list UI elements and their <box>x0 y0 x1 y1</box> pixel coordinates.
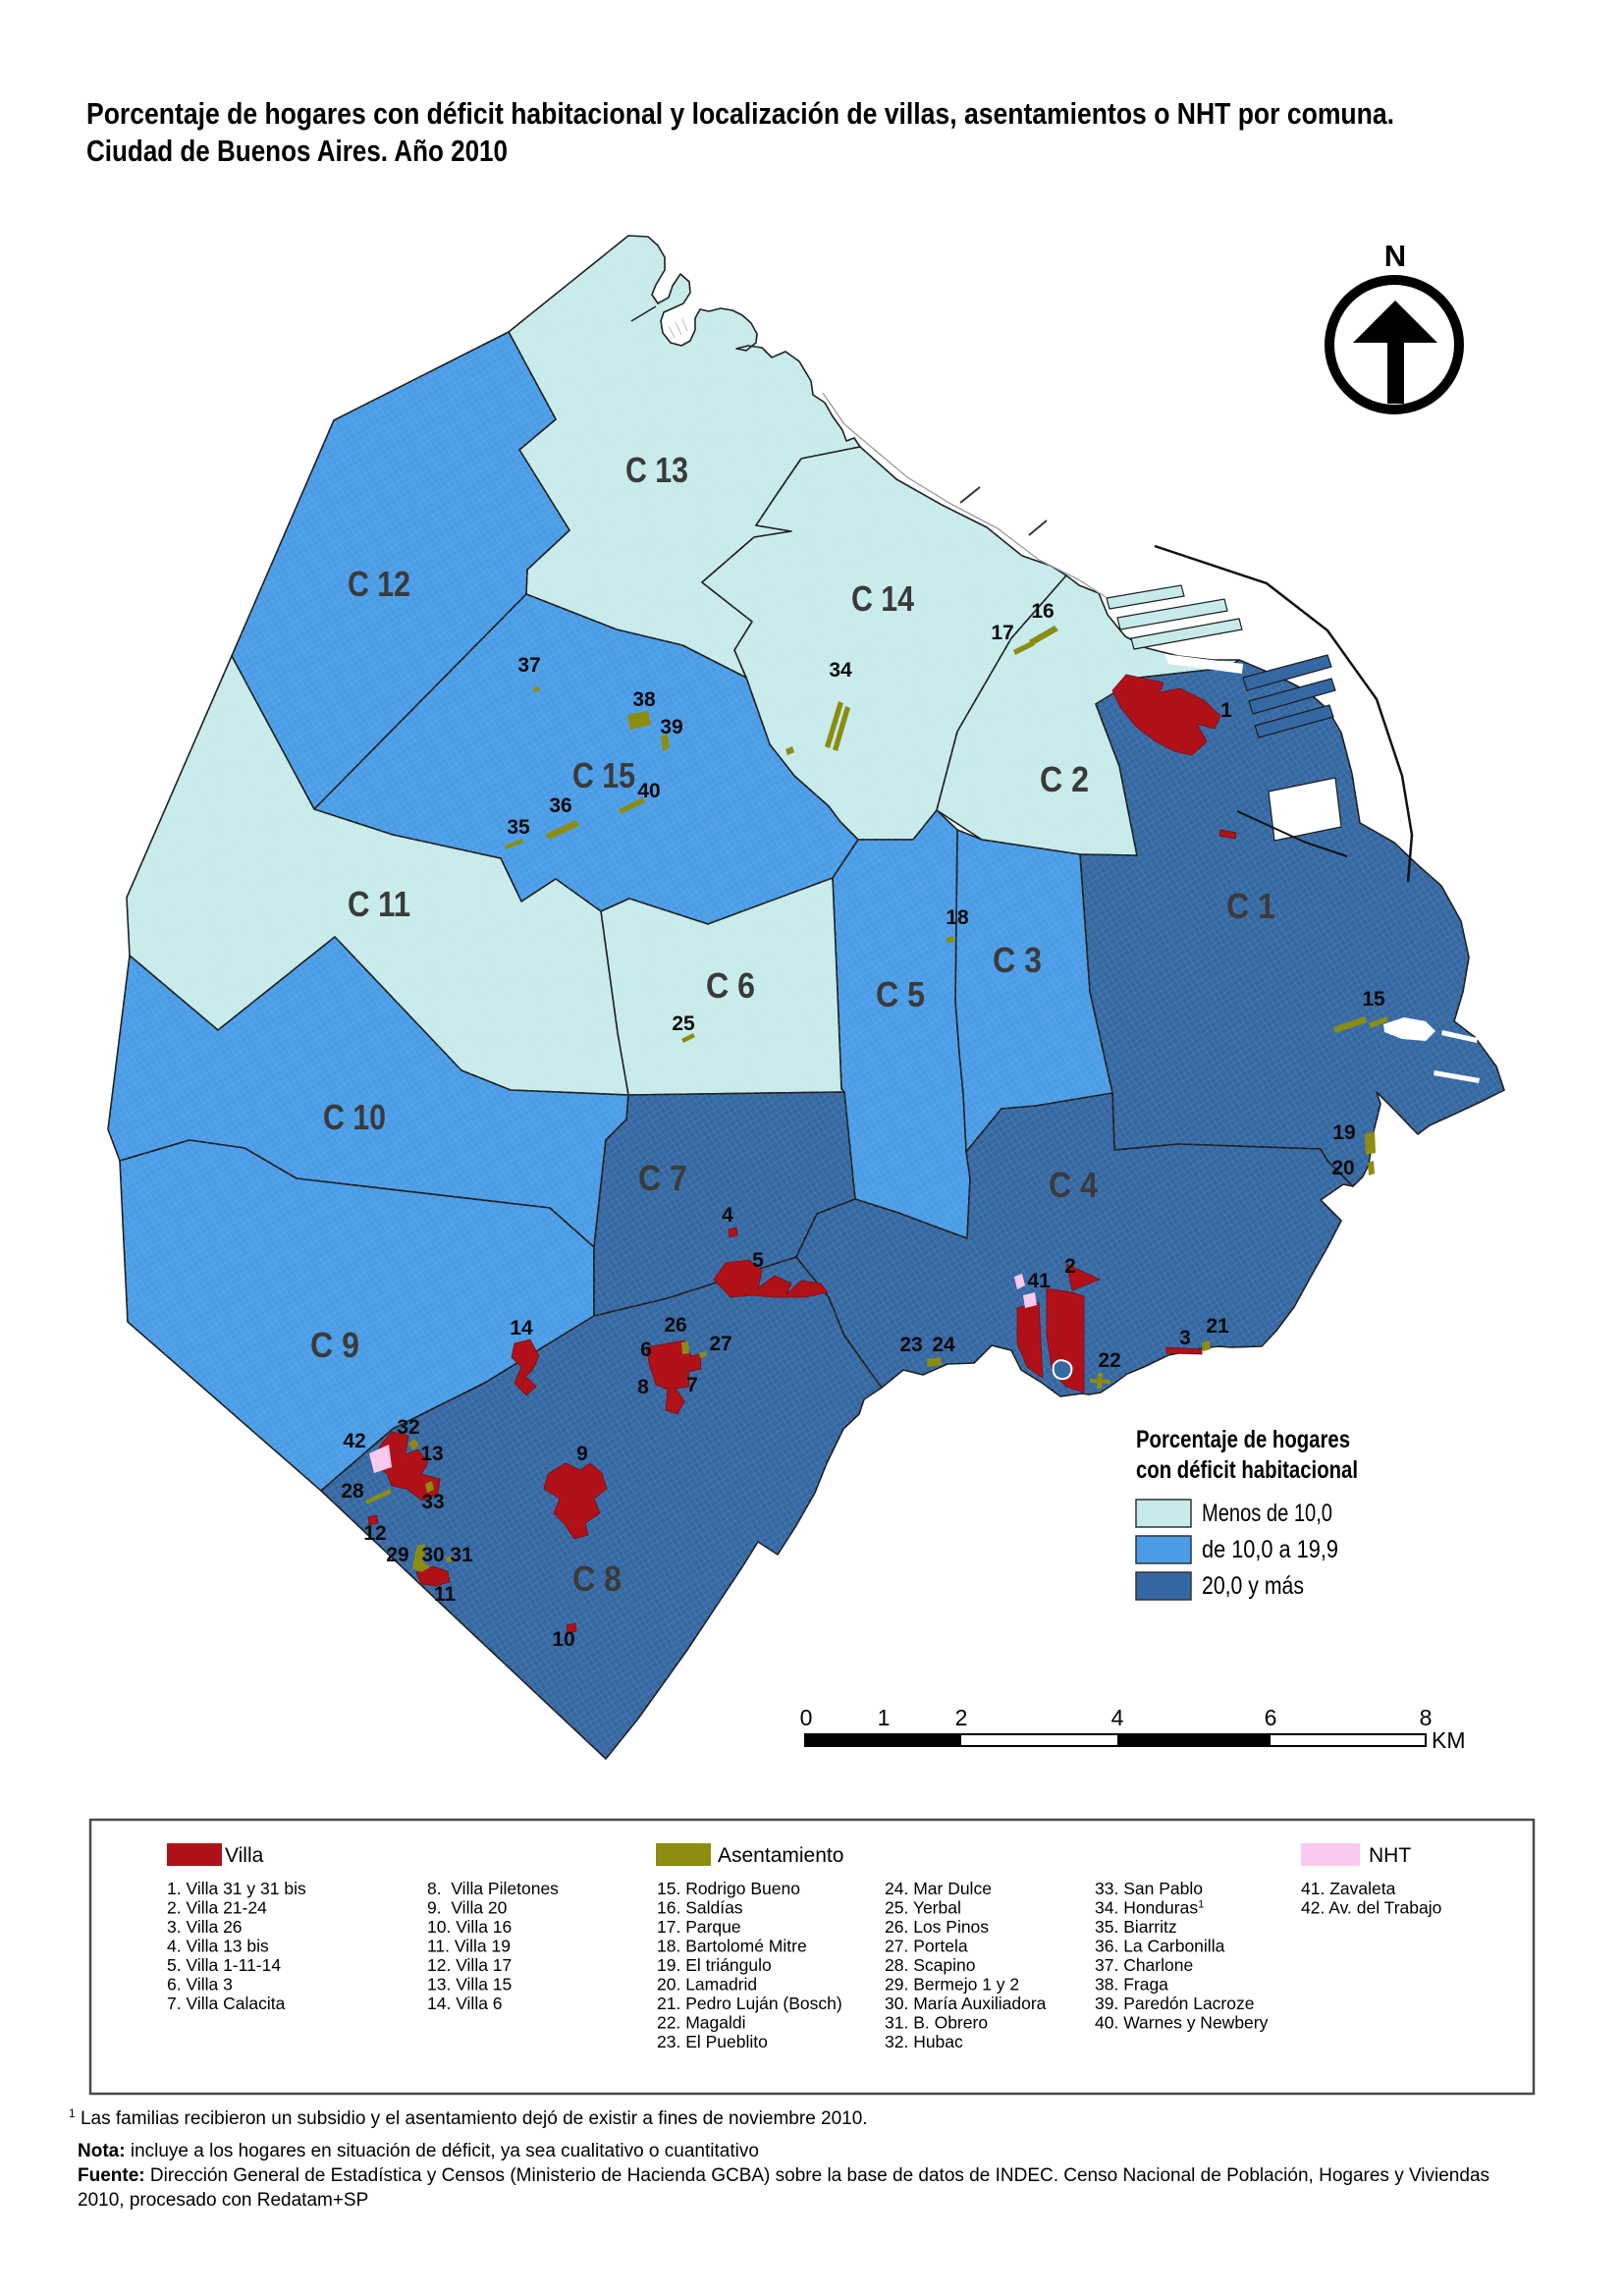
svg-text:C 8: C 8 <box>572 1558 622 1599</box>
svg-text:42: 42 <box>343 1430 365 1452</box>
svg-text:17: 17 <box>991 622 1013 644</box>
svg-text:16: 16 <box>1031 600 1054 623</box>
svg-text:29: 29 <box>386 1544 408 1566</box>
svg-text:N: N <box>1384 239 1406 273</box>
svg-text:2010, procesado con Redatam+SP: 2010, procesado con Redatam+SP <box>78 2190 368 2211</box>
svg-text:con déficit habitacional: con déficit habitacional <box>1136 1456 1358 1484</box>
svg-text:36. La Carbonilla: 36. La Carbonilla <box>1095 1937 1225 1956</box>
svg-text:33: 33 <box>421 1491 444 1513</box>
svg-text:1: 1 <box>878 1705 891 1730</box>
svg-text:23: 23 <box>899 1334 922 1356</box>
svg-text:Ciudad de Buenos Aires. Año 20: Ciudad de Buenos Aires. Año 2010 <box>86 134 508 168</box>
svg-text:C 6: C 6 <box>706 965 755 1006</box>
svg-text:32: 32 <box>397 1416 419 1439</box>
svg-text:13: 13 <box>420 1443 443 1465</box>
svg-text:Villa: Villa <box>225 1844 264 1867</box>
svg-text:36: 36 <box>549 794 571 817</box>
svg-text:31: 31 <box>450 1544 473 1566</box>
svg-text:32. Hubac: 32. Hubac <box>885 2032 963 2051</box>
svg-text:24: 24 <box>932 1334 955 1356</box>
svg-text:15: 15 <box>1362 988 1385 1011</box>
svg-text:1. Villa 31 y 31 bis: 1. Villa 31 y 31 bis <box>167 1879 306 1898</box>
svg-text:39. Paredón Lacroze: 39. Paredón Lacroze <box>1095 1994 1254 2013</box>
svg-text:3. Villa 26: 3. Villa 26 <box>167 1917 243 1937</box>
svg-text:41: 41 <box>1027 1270 1051 1292</box>
svg-text:35: 35 <box>507 816 530 839</box>
svg-text:C 4: C 4 <box>1049 1165 1098 1205</box>
svg-text:Nota: incluye a los hogares en: Nota: incluye a los hogares en situación… <box>78 2141 759 2161</box>
svg-text:C 5: C 5 <box>876 974 925 1014</box>
svg-text:Porcentaje de hogares con défi: Porcentaje de hogares con déficit habita… <box>86 96 1394 131</box>
svg-text:26. Los Pinos: 26. Los Pinos <box>885 1917 989 1937</box>
svg-text:20. Lamadrid: 20. Lamadrid <box>657 1975 757 1995</box>
svg-text:39: 39 <box>660 716 682 738</box>
svg-text:12. Villa 17: 12. Villa 17 <box>427 1955 512 1975</box>
svg-text:C 9: C 9 <box>310 1325 359 1365</box>
svg-text:0: 0 <box>800 1705 813 1730</box>
svg-text:Menos de 10,0: Menos de 10,0 <box>1202 1500 1332 1527</box>
svg-text:C 15: C 15 <box>572 755 635 795</box>
svg-text:4. Villa 13 bis: 4. Villa 13 bis <box>167 1937 269 1956</box>
svg-text:35. Biarritz: 35. Biarritz <box>1095 1917 1177 1937</box>
svg-text:KM: KM <box>1432 1727 1466 1753</box>
svg-text:13. Villa 15: 13. Villa 15 <box>427 1975 512 1995</box>
svg-text:22: 22 <box>1098 1349 1120 1372</box>
svg-text:31. B. Obrero: 31. B. Obrero <box>885 2013 988 2033</box>
svg-text:30. María Auxiliadora: 30. María Auxiliadora <box>885 1994 1047 2013</box>
svg-text:11: 11 <box>434 1583 457 1606</box>
svg-text:29. Bermejo 1 y 2: 29. Bermejo 1 y 2 <box>885 1975 1019 1995</box>
svg-text:10: 10 <box>552 1628 574 1651</box>
svg-text:40: 40 <box>637 780 660 802</box>
svg-text:Fuente: Dirección General de E: Fuente: Dirección General de Estadística… <box>78 2165 1489 2186</box>
svg-text:C 14: C 14 <box>851 578 914 619</box>
svg-text:5. Villa 1-11-14: 5. Villa 1-11-14 <box>167 1955 281 1975</box>
svg-text:34: 34 <box>829 659 852 682</box>
svg-text:12: 12 <box>363 1522 386 1545</box>
svg-text:27. Portela: 27. Portela <box>885 1937 968 1956</box>
svg-text:10. Villa 16: 10. Villa 16 <box>427 1917 512 1937</box>
svg-text:6: 6 <box>640 1339 652 1361</box>
svg-text:6. Villa 3: 6. Villa 3 <box>167 1975 233 1995</box>
svg-text:24. Mar Dulce: 24. Mar Dulce <box>885 1879 992 1898</box>
svg-text:1: 1 <box>1220 699 1232 722</box>
svg-text:30: 30 <box>421 1544 444 1566</box>
svg-text:21. Pedro Luján (Bosch): 21. Pedro Luján (Bosch) <box>657 1994 842 2013</box>
svg-text:42. Av. del Trabajo: 42. Av. del Trabajo <box>1301 1898 1441 1918</box>
svg-text:37: 37 <box>517 654 540 677</box>
svg-text:17. Parque: 17. Parque <box>657 1917 741 1937</box>
svg-text:27: 27 <box>709 1333 731 1355</box>
svg-text:23. El Pueblito: 23. El Pueblito <box>657 2032 768 2051</box>
svg-text:38: 38 <box>632 688 656 711</box>
svg-text:19. El triángulo: 19. El triángulo <box>657 1955 772 1975</box>
svg-text:3: 3 <box>1179 1327 1191 1349</box>
svg-text:28: 28 <box>341 1480 364 1503</box>
svg-text:28. Scapino: 28. Scapino <box>885 1955 975 1975</box>
svg-text:25. Yerbal: 25. Yerbal <box>885 1898 961 1918</box>
svg-text:9: 9 <box>576 1443 588 1465</box>
svg-text:8. Villa Piletones: 8. Villa Piletones <box>427 1879 559 1898</box>
svg-text:de 10,0 a 19,9: de 10,0 a 19,9 <box>1202 1536 1338 1563</box>
svg-text:34. Honduras1: 34. Honduras1 <box>1095 1898 1204 1918</box>
svg-text:38. Fraga: 38. Fraga <box>1095 1975 1168 1995</box>
svg-text:20: 20 <box>1331 1157 1354 1179</box>
svg-text:2. Villa 21-24: 2. Villa 21-24 <box>167 1898 267 1918</box>
svg-text:2: 2 <box>1064 1255 1076 1278</box>
svg-text:Porcentaje de hogares: Porcentaje de hogares <box>1136 1426 1350 1453</box>
svg-text:C 11: C 11 <box>348 884 410 924</box>
svg-text:26: 26 <box>664 1314 686 1337</box>
svg-text:16. Saldías: 16. Saldías <box>657 1898 743 1918</box>
svg-text:37. Charlone: 37. Charlone <box>1095 1955 1193 1975</box>
svg-text:15. Rodrigo Bueno: 15. Rodrigo Bueno <box>657 1879 800 1898</box>
svg-text:18. Bartolomé Mitre: 18. Bartolomé Mitre <box>657 1937 807 1956</box>
svg-text:5: 5 <box>752 1249 764 1272</box>
svg-text:11. Villa 19: 11. Villa 19 <box>427 1937 511 1956</box>
svg-text:25: 25 <box>672 1012 695 1035</box>
svg-text:8: 8 <box>1420 1705 1433 1730</box>
svg-text:9. Villa 20: 9. Villa 20 <box>427 1898 508 1918</box>
svg-text:C 7: C 7 <box>638 1158 687 1198</box>
svg-text:2: 2 <box>955 1705 968 1730</box>
svg-text:4: 4 <box>1111 1705 1124 1730</box>
svg-text:14: 14 <box>510 1317 533 1339</box>
svg-text:8: 8 <box>637 1376 649 1398</box>
svg-text:1 Las familias recibieron un s: 1 Las familias recibieron un subsidio y … <box>69 2106 868 2129</box>
svg-text:C 1: C 1 <box>1226 886 1275 926</box>
svg-text:7. Villa Calacita: 7. Villa Calacita <box>167 1994 286 2013</box>
svg-text:19: 19 <box>1332 1121 1355 1144</box>
svg-text:21: 21 <box>1206 1315 1229 1338</box>
svg-text:40. Warnes y Newbery: 40. Warnes y Newbery <box>1095 2013 1269 2033</box>
svg-text:C 12: C 12 <box>348 564 410 604</box>
svg-text:C 2: C 2 <box>1040 759 1089 799</box>
svg-text:33. San Pablo: 33. San Pablo <box>1095 1879 1203 1898</box>
svg-text:C 3: C 3 <box>993 940 1042 980</box>
svg-text:Asentamiento: Asentamiento <box>718 1844 843 1867</box>
svg-text:22. Magaldi: 22. Magaldi <box>657 2013 745 2033</box>
svg-text:C 13: C 13 <box>625 450 688 490</box>
svg-text:C 10: C 10 <box>323 1097 386 1137</box>
svg-text:18: 18 <box>946 906 969 929</box>
svg-text:14. Villa 6: 14. Villa 6 <box>427 1994 503 2013</box>
svg-text:20,0 y más: 20,0 y más <box>1202 1572 1304 1600</box>
svg-text:NHT: NHT <box>1369 1844 1411 1867</box>
svg-text:41. Zavaleta: 41. Zavaleta <box>1301 1879 1396 1898</box>
svg-text:4: 4 <box>722 1204 733 1227</box>
svg-text:7: 7 <box>686 1374 698 1396</box>
svg-text:6: 6 <box>1265 1705 1277 1730</box>
